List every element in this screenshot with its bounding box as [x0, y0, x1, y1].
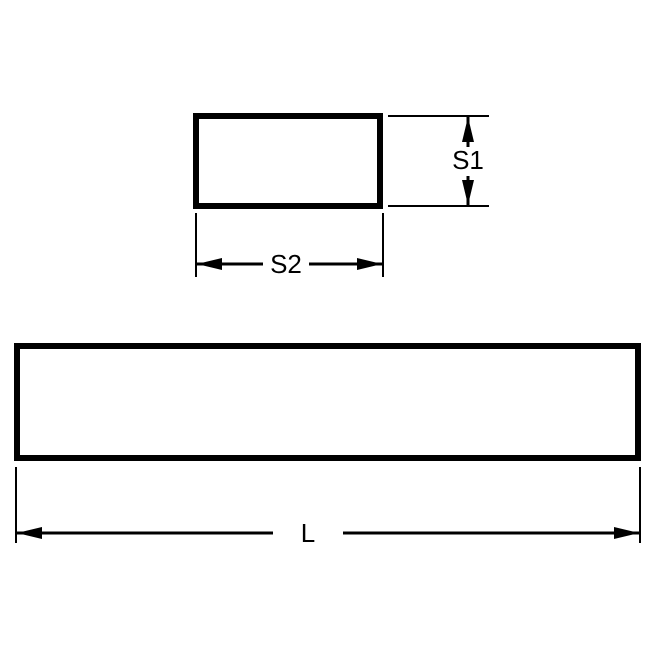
s1-label: S1: [452, 145, 484, 175]
cross-section-view: S1 S2: [196, 116, 489, 279]
s2-dimension: S2: [196, 213, 383, 279]
diagram-canvas: S1 S2: [0, 0, 670, 670]
side-view: L: [16, 346, 640, 548]
l-dimension: L: [16, 467, 640, 548]
side-view-rectangle: [17, 346, 638, 458]
cross-section-rectangle: [196, 116, 380, 206]
s2-label: S2: [270, 249, 302, 279]
s1-arrow-up-icon: [462, 117, 474, 142]
l-arrow-left-icon: [17, 527, 42, 539]
s1-dimension: S1: [388, 116, 489, 206]
s2-arrow-right-icon: [357, 258, 382, 270]
l-label: L: [301, 518, 315, 548]
s1-arrow-down-icon: [462, 180, 474, 205]
s2-arrow-left-icon: [197, 258, 222, 270]
l-arrow-right-icon: [614, 527, 639, 539]
keystock-dimension-diagram: S1 S2: [0, 0, 670, 670]
